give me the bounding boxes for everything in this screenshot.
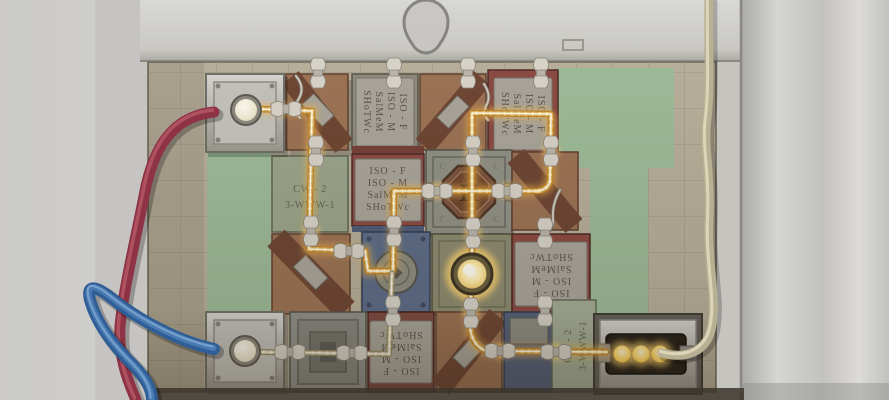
- puzzle-panel-scene: ISO - F ISO - M SalMeM SHoTWc ISO - F IS…: [0, 0, 889, 400]
- panel-bottom-shadow: [148, 388, 744, 400]
- right-frame-bottom-shade: [740, 383, 889, 400]
- right-frame-band: [740, 0, 889, 400]
- panel-svg: ISO - F ISO - M SalMeM SHoTWc ISO - F IS…: [0, 0, 889, 400]
- board-vignette: [148, 62, 716, 392]
